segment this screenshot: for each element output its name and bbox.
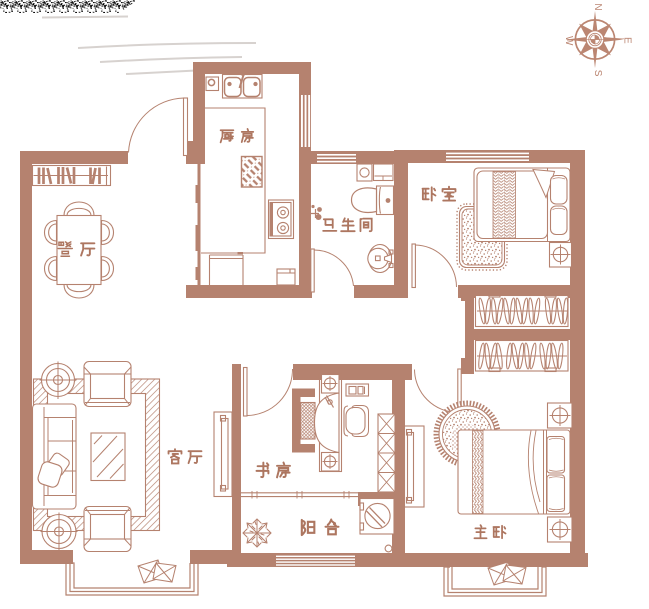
svg-text:S: S bbox=[592, 70, 603, 77]
svg-text:W: W bbox=[563, 36, 574, 46]
svg-text:E: E bbox=[622, 37, 633, 44]
svg-text:N: N bbox=[592, 3, 603, 10]
